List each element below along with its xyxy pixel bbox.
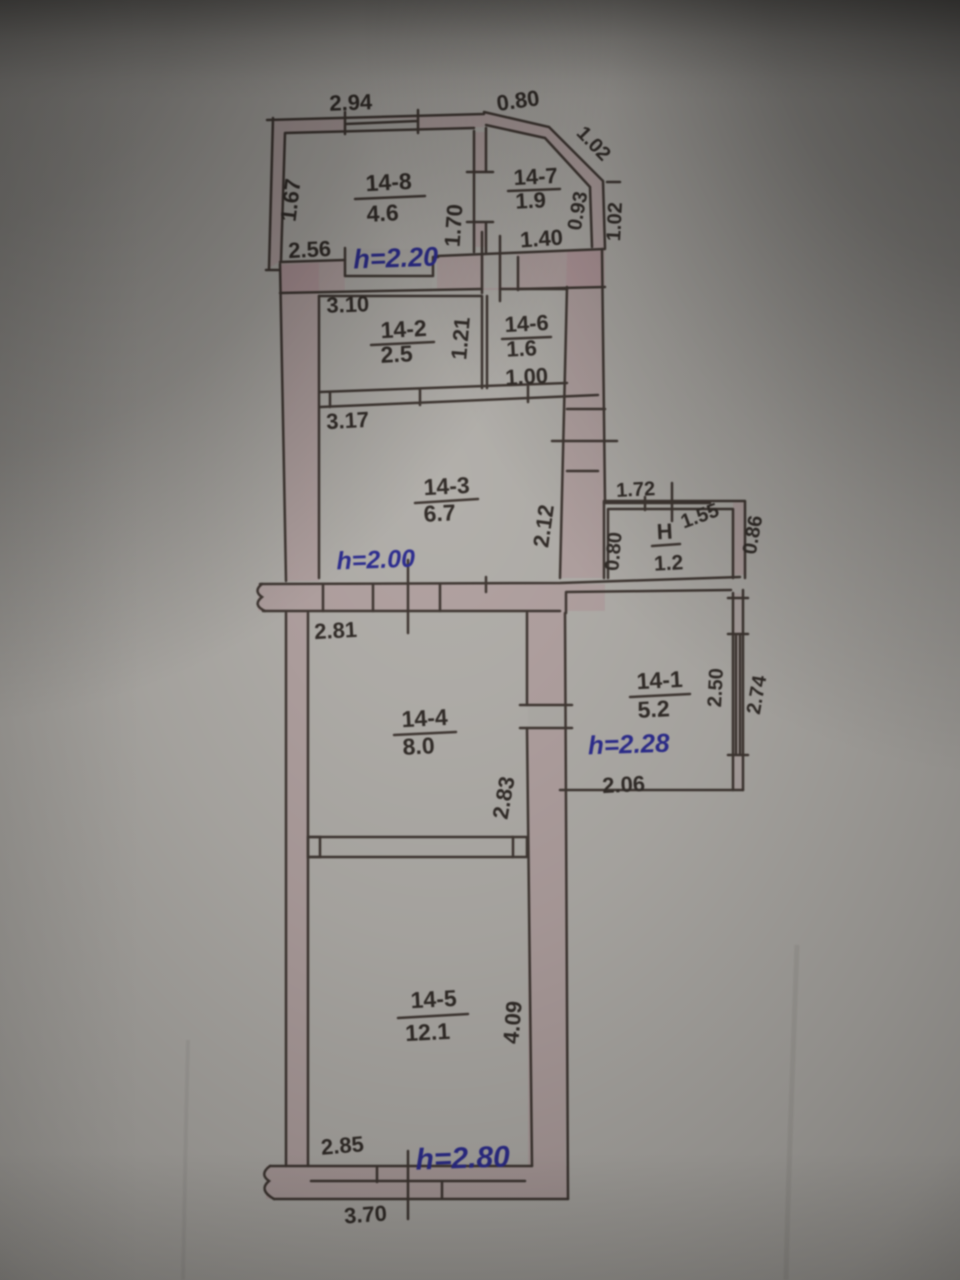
- svg-text:8.0: 8.0: [402, 732, 435, 760]
- svg-text:3.17: 3.17: [326, 407, 370, 434]
- svg-text:1.40: 1.40: [519, 225, 563, 253]
- svg-text:14-5: 14-5: [410, 985, 458, 1013]
- svg-text:1.72: 1.72: [616, 478, 656, 502]
- svg-text:2.74: 2.74: [743, 673, 772, 716]
- svg-text:2.81: 2.81: [314, 617, 358, 644]
- svg-text:1.67: 1.67: [276, 177, 306, 223]
- svg-text:h=2.28: h=2.28: [587, 728, 670, 761]
- svg-text:14-6: 14-6: [504, 310, 549, 337]
- svg-text:h=2.20: h=2.20: [353, 242, 439, 275]
- svg-text:2.50: 2.50: [704, 668, 728, 708]
- svg-text:2.94: 2.94: [329, 89, 373, 116]
- svg-text:14-2: 14-2: [380, 315, 427, 343]
- svg-text:1.00: 1.00: [505, 363, 549, 390]
- svg-text:1.70: 1.70: [440, 203, 468, 247]
- svg-text:1.2: 1.2: [653, 551, 683, 575]
- svg-text:14-7: 14-7: [513, 163, 558, 190]
- svg-text:1.02: 1.02: [603, 202, 627, 242]
- svg-text:h=2.00: h=2.00: [336, 545, 416, 576]
- svg-text:14-4: 14-4: [401, 704, 449, 732]
- svg-text:4.6: 4.6: [366, 199, 399, 227]
- svg-text:12.1: 12.1: [405, 1018, 451, 1046]
- svg-text:3.10: 3.10: [326, 291, 370, 317]
- svg-text:14-1: 14-1: [636, 666, 684, 694]
- svg-text:1.55: 1.55: [678, 499, 722, 533]
- svg-text:2.12: 2.12: [528, 503, 559, 549]
- svg-text:0.93: 0.93: [564, 190, 592, 232]
- svg-text:h=2.80: h=2.80: [415, 1140, 511, 1176]
- svg-text:2.85: 2.85: [320, 1131, 365, 1160]
- svg-text:4.09: 4.09: [498, 1000, 527, 1045]
- svg-text:2.83: 2.83: [488, 774, 520, 821]
- svg-text:14-8: 14-8: [365, 168, 413, 196]
- svg-text:2.56: 2.56: [288, 236, 332, 263]
- svg-text:H: H: [656, 519, 673, 545]
- svg-text:1.21: 1.21: [446, 316, 475, 361]
- svg-text:14-3: 14-3: [423, 472, 470, 500]
- svg-text:2.06: 2.06: [602, 771, 646, 798]
- svg-text:0.80: 0.80: [601, 531, 626, 572]
- svg-text:5.2: 5.2: [637, 695, 670, 723]
- svg-text:0.80: 0.80: [495, 85, 541, 116]
- svg-text:3.70: 3.70: [343, 1201, 387, 1229]
